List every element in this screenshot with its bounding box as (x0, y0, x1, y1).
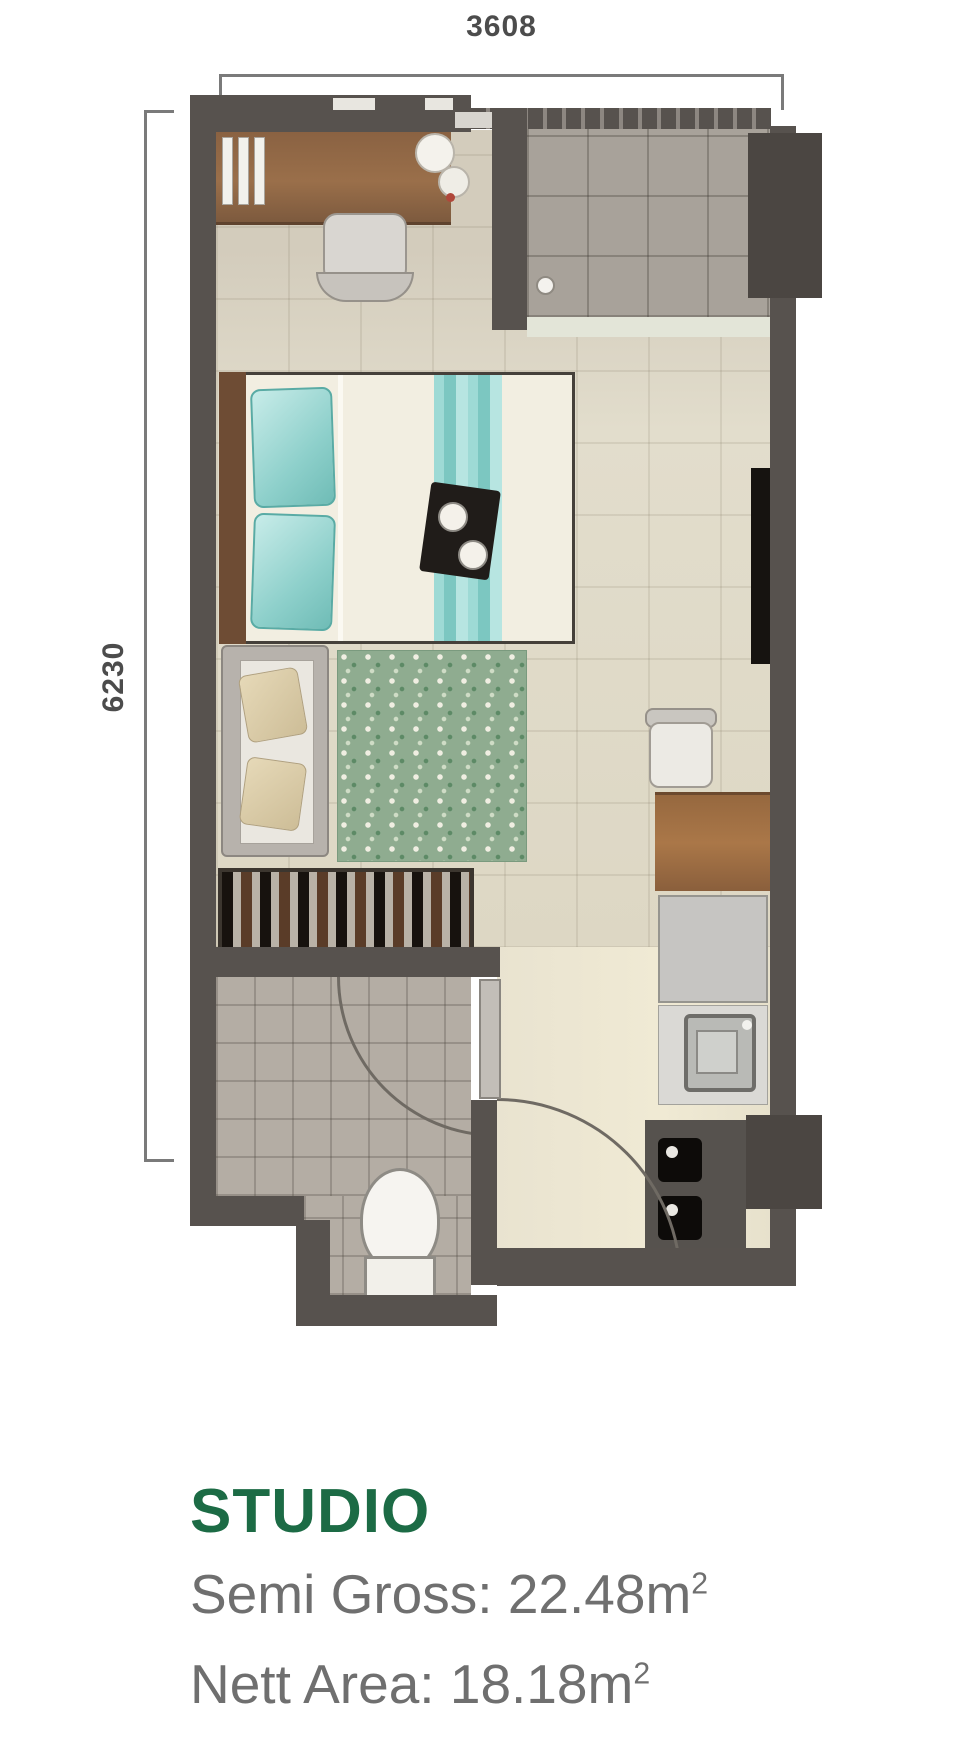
floor-entry-foyer (527, 129, 770, 317)
entry-partition-wall (492, 108, 527, 330)
entry-threshold (455, 112, 492, 128)
rug (337, 650, 527, 862)
foyer-threshold (527, 317, 770, 337)
stove-burner (658, 1138, 702, 1182)
sofa-cushion (238, 666, 309, 743)
pillow (250, 387, 336, 509)
column-top-right (748, 133, 822, 298)
window-blinds (222, 137, 233, 205)
dimension-width-line (219, 74, 784, 77)
wardrobe-slats (222, 872, 470, 948)
dimension-height-line (144, 110, 147, 1162)
desk-decor-accent (446, 193, 455, 202)
nett-area-value: Nett Area: 18.18m (190, 1653, 633, 1715)
side-chair (649, 722, 713, 788)
wall-ledge-strip (751, 468, 770, 664)
faucet (742, 1020, 752, 1030)
sink-basin (696, 1030, 738, 1074)
cup (438, 502, 468, 532)
dimension-height-tick-bottom (144, 1159, 174, 1162)
bed-headboard (219, 372, 246, 644)
toilet-niche-wall-bottom (296, 1295, 497, 1326)
toilet-tank (364, 1256, 436, 1300)
sofa-cushion (239, 756, 308, 832)
dimension-height-label: 6230 (97, 627, 131, 727)
wall-bottom-kitchen (497, 1248, 796, 1286)
wall-bottom-bathroom (190, 1196, 304, 1226)
nett-area-sup: 2 (633, 1658, 650, 1691)
window-blinds (238, 137, 249, 205)
nett-area-text: Nett Area: 18.18m2 (190, 1652, 650, 1716)
sliding-door-panel (479, 979, 501, 1099)
semi-gross-value: Semi Gross: 22.48m (190, 1563, 691, 1625)
wall-bedroom-divider (190, 947, 500, 977)
semi-gross-sup: 2 (691, 1568, 708, 1601)
door-knob (536, 276, 555, 295)
wall-bath-kitchen-divider (471, 1100, 497, 1285)
pillow (250, 513, 336, 632)
desk-decor (438, 166, 470, 198)
dimension-height-tick-top (144, 110, 174, 113)
semi-gross-area-text: Semi Gross: 22.48m2 (190, 1562, 708, 1626)
window-blinds (254, 137, 265, 205)
side-desk (655, 792, 770, 891)
dimension-width-tick-right (781, 74, 784, 110)
office-chair-back (316, 272, 414, 302)
cup (458, 540, 488, 570)
duvet-fold (338, 375, 343, 641)
column-bottom-right (746, 1115, 822, 1209)
unit-type-title: STUDIO (190, 1476, 430, 1547)
dimension-width-label: 3608 (219, 10, 784, 44)
fridge (658, 895, 768, 1003)
burner-knob (666, 1146, 678, 1158)
window-slit (333, 98, 375, 110)
wardrobe (218, 868, 474, 952)
window-slit (425, 98, 453, 110)
floorplan-page: 3608 6230 (0, 0, 979, 1740)
serving-tray (419, 482, 501, 581)
wall-left (190, 95, 216, 1217)
